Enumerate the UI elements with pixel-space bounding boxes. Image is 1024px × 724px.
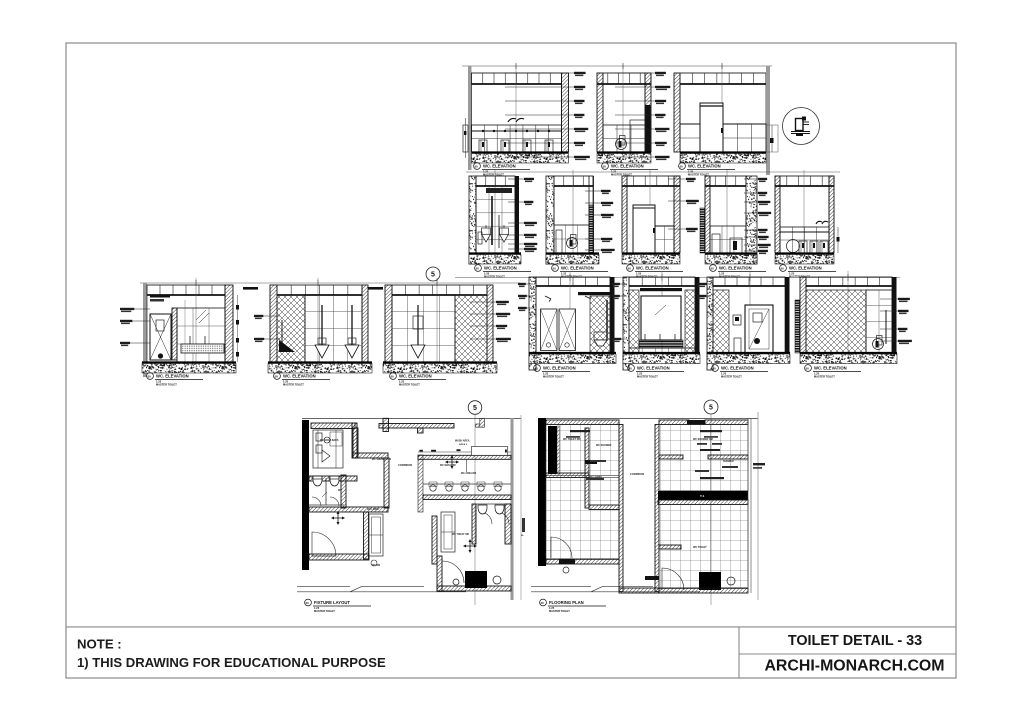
- svg-text:00: 00: [711, 266, 715, 270]
- svg-text:EL: EL: [521, 535, 524, 537]
- svg-text:00: 00: [629, 366, 633, 370]
- svg-text:WC. ELEVATION: WC. ELEVATION: [561, 266, 594, 271]
- svg-text:MASTER TOILET: MASTER TOILET: [636, 275, 657, 279]
- svg-text:MASTER TOILET: MASTER TOILET: [399, 383, 420, 387]
- svg-text:WC. ELEVATION: WC. ELEVATION: [611, 164, 644, 169]
- svg-text:5: 5: [709, 405, 713, 412]
- svg-text:WC SHOWER RM: WC SHOWER RM: [693, 438, 713, 441]
- svg-text:WC. ELEVATION: WC. ELEVATION: [483, 164, 516, 169]
- svg-text:TOILET DETAIL - 33: TOILET DETAIL - 33: [788, 633, 922, 649]
- svg-text:00: 00: [391, 374, 395, 378]
- svg-text:FIXTURE LAYOUT: FIXTURE LAYOUT: [314, 600, 350, 605]
- svg-text:WC. ELEVATION: WC. ELEVATION: [688, 164, 721, 169]
- svg-text:WC. ELEVATION: WC. ELEVATION: [484, 266, 517, 271]
- svg-text:WC LOBBY: WC LOBBY: [367, 509, 380, 511]
- svg-text:T-1: T-1: [700, 494, 705, 498]
- svg-text:MASTER TOILET: MASTER TOILET: [283, 383, 304, 387]
- svg-text:1) THIS DRAWING FOR EDUCATIONA: 1) THIS DRAWING FOR EDUCATIONAL PURPOSE: [77, 655, 386, 670]
- svg-text:WC. ELEVATION: WC. ELEVATION: [543, 366, 576, 371]
- svg-text:MASTER TOILET: MASTER TOILET: [314, 609, 335, 613]
- svg-text:00: 00: [603, 164, 607, 168]
- svg-text:5: 5: [431, 272, 435, 279]
- svg-text:00: 00: [680, 164, 684, 168]
- svg-text:CORRIDOR: CORRIDOR: [630, 472, 644, 476]
- svg-text:00: 00: [713, 366, 717, 370]
- svg-text:MASTER TOILET: MASTER TOILET: [549, 609, 570, 613]
- svg-text:WC. ELEVATION: WC. ELEVATION: [789, 266, 822, 271]
- svg-text:00: 00: [306, 601, 310, 605]
- svg-text:WC. ELEVATION: WC. ELEVATION: [637, 366, 670, 371]
- svg-text:AREA 2: AREA 2: [459, 443, 468, 446]
- svg-text:00: 00: [148, 374, 152, 378]
- svg-text:00: 00: [806, 366, 810, 370]
- svg-text:WC. ELEVATION: WC. ELEVATION: [721, 366, 754, 371]
- svg-text:WC. ELEVATION: WC. ELEVATION: [156, 374, 189, 379]
- svg-text:FLOORING PLAN: FLOORING PLAN: [549, 600, 584, 605]
- svg-text:5: 5: [473, 405, 477, 412]
- svg-text:MASTER TOILET: MASTER TOILET: [561, 275, 582, 279]
- svg-text:CORRIDOR: CORRIDOR: [398, 463, 412, 467]
- svg-text:SHOWER: SHOWER: [723, 460, 734, 463]
- svg-text:WASH AREA: WASH AREA: [455, 440, 470, 443]
- svg-text:00: 00: [275, 374, 279, 378]
- svg-text:WC TOILET RM: WC TOILET RM: [452, 534, 469, 536]
- svg-text:WC TOILET RM: WC TOILET RM: [563, 438, 581, 441]
- svg-text:MASTER TOILET: MASTER TOILET: [484, 275, 505, 279]
- svg-text:WC. ELEVATION: WC. ELEVATION: [719, 266, 752, 271]
- svg-text:NOTE :: NOTE :: [77, 637, 122, 652]
- svg-text:WC TOILET: WC TOILET: [693, 546, 707, 549]
- svg-text:WC AREA RM: WC AREA RM: [461, 472, 476, 475]
- svg-text:WC WASH RM: WC WASH RM: [440, 464, 456, 467]
- svg-text:00: 00: [476, 266, 480, 270]
- svg-text:WC. ELEVATION: WC. ELEVATION: [283, 374, 316, 379]
- svg-text:MASTER TOILET: MASTER TOILET: [814, 375, 835, 379]
- svg-text:WC. ELEVATION: WC. ELEVATION: [636, 266, 669, 271]
- svg-text:WC RM: WC RM: [372, 565, 380, 567]
- svg-text:MASTER TOILET: MASTER TOILET: [637, 375, 658, 379]
- svg-text:WC. ELEVATION: WC. ELEVATION: [399, 374, 432, 379]
- svg-text:00: 00: [781, 266, 785, 270]
- svg-text:WC SHOWER: WC SHOWER: [596, 444, 612, 447]
- svg-text:MASTER TOILET: MASTER TOILET: [721, 375, 742, 379]
- svg-text:00: 00: [535, 366, 539, 370]
- svg-text:00: 00: [541, 601, 545, 605]
- svg-text:MASTER TOILET: MASTER TOILET: [156, 383, 177, 387]
- svg-text:00: 00: [553, 266, 557, 270]
- svg-text:00: 00: [475, 164, 479, 168]
- svg-text:WC SHOWER RM: WC SHOWER RM: [372, 459, 391, 461]
- svg-text:WC. ELEVATION: WC. ELEVATION: [814, 366, 847, 371]
- svg-text:00: 00: [628, 266, 632, 270]
- svg-text:WC GRAB BARS: WC GRAB BARS: [320, 439, 339, 442]
- svg-text:MASTER TOILET: MASTER TOILET: [543, 375, 564, 379]
- svg-text:ARCHI-MONARCH.COM: ARCHI-MONARCH.COM: [764, 658, 944, 675]
- svg-text:WC: WC: [338, 490, 342, 492]
